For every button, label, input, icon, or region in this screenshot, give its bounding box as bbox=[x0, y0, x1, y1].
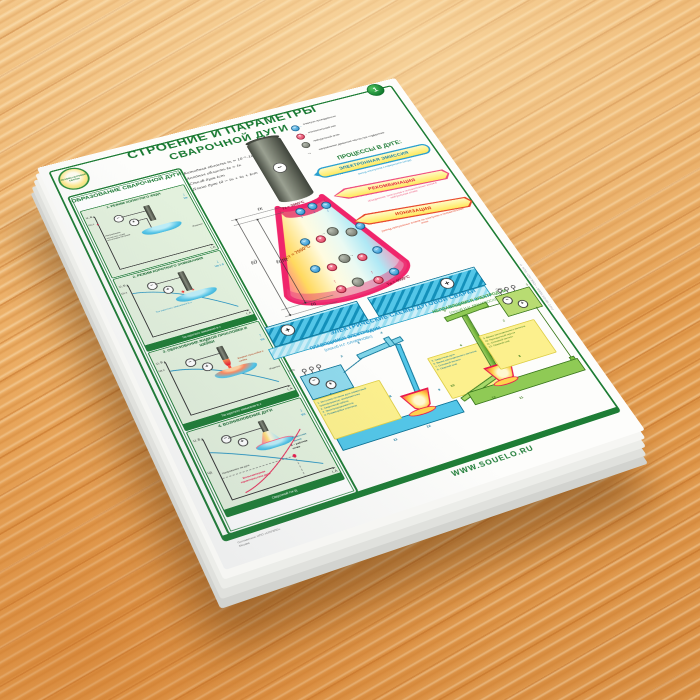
plus-sign: + bbox=[329, 265, 334, 270]
minus-sign: − bbox=[375, 247, 380, 252]
welding-poster: 1 ОСНОВЫ ДУГОВОЙ СВАРКИ СТРОЕНИЕ И ПАРАМ… bbox=[37, 78, 645, 570]
minus-sign: − bbox=[323, 203, 328, 207]
feed-speed-text: Vп bbox=[260, 337, 265, 341]
workpiece-label: Изделие bbox=[192, 223, 203, 228]
minus-sign: − bbox=[391, 269, 396, 274]
panel-note: Напряжение холостого хода источника пита… bbox=[105, 229, 134, 243]
wire bbox=[121, 210, 149, 218]
series-logo-text: ОСНОВЫ ДУГОВОЙ СВАРКИ bbox=[60, 173, 88, 184]
arrow-right-icon: → bbox=[306, 151, 313, 156]
x-axis-label: I, A bbox=[210, 245, 216, 249]
feed-speed-label: ↓Vп bbox=[181, 193, 188, 200]
plus-sign: + bbox=[376, 277, 381, 282]
minus-sign: − bbox=[310, 204, 315, 208]
panel-plot: U, B I, A − + ↓Vп Сварочная ванна Uд Нап… bbox=[193, 407, 338, 508]
arrow-right-icon: → bbox=[297, 124, 303, 128]
y-axis-label: U, B bbox=[85, 216, 92, 220]
minus-sign: − bbox=[298, 209, 303, 213]
wooden-table-background: 1 ОСНОВЫ ДУГОВОЙ СВАРКИ СТРОЕНИЕ И ПАРАМ… bbox=[0, 0, 700, 700]
y-axis bbox=[94, 218, 120, 270]
arrow-right-icon: → bbox=[302, 133, 308, 137]
plus-sign: + bbox=[338, 286, 343, 291]
uxx-label: Uх.х bbox=[88, 224, 95, 228]
feed-speed-text: Vп bbox=[183, 196, 188, 199]
plus-sign: + bbox=[359, 255, 364, 260]
feed-speed-text: Vп bbox=[300, 412, 306, 416]
vac-curves bbox=[193, 407, 338, 508]
wire bbox=[136, 218, 146, 221]
